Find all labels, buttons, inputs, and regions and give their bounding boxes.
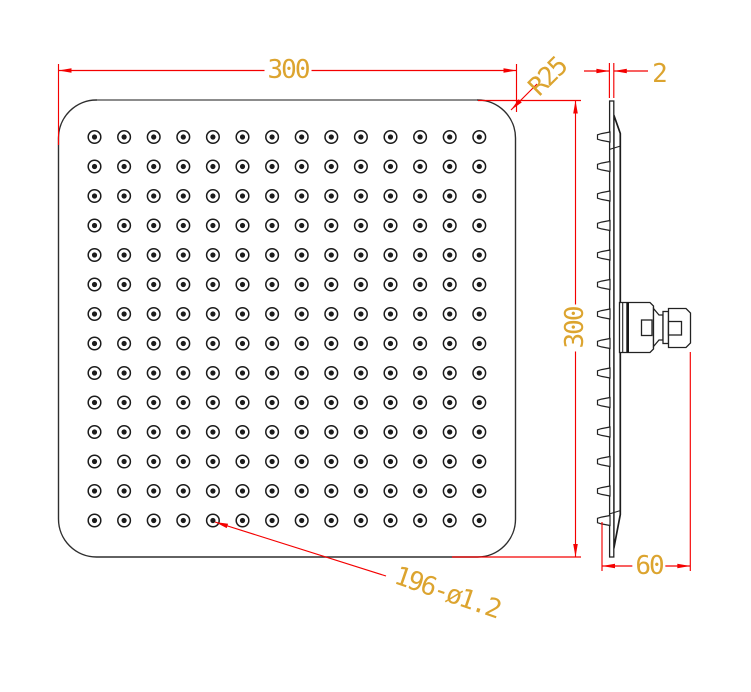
nozzle-hole <box>418 518 423 523</box>
nozzle-hole <box>270 518 275 523</box>
nozzle-hole <box>329 518 334 523</box>
nozzle-hole <box>181 223 186 228</box>
nozzle-hole <box>151 134 156 139</box>
nozzle-cone <box>598 191 611 201</box>
hose-socket <box>669 322 682 336</box>
nozzle-hole <box>329 164 334 169</box>
nozzle-hole <box>240 429 245 434</box>
nozzle-hole <box>477 488 482 493</box>
nozzle-cone <box>598 162 611 172</box>
nozzle-hole <box>388 193 393 198</box>
nozzle-hole <box>477 282 482 287</box>
nozzle-hole <box>92 429 97 434</box>
nozzle-hole <box>447 134 452 139</box>
nozzle-hole <box>418 370 423 375</box>
nozzle-hole <box>122 341 127 346</box>
nozzle-hole <box>358 459 363 464</box>
nozzle-hole <box>270 370 275 375</box>
nozzle-hole <box>151 223 156 228</box>
nozzle-hole <box>122 488 127 493</box>
nozzle-hole <box>418 134 423 139</box>
dim-thickness <box>584 63 648 98</box>
nozzle-hole <box>240 282 245 287</box>
nozzle-hole <box>270 193 275 198</box>
nozzle-hole <box>358 282 363 287</box>
nozzle-hole <box>358 429 363 434</box>
nozzle-hole <box>477 252 482 257</box>
nozzle-hole <box>151 341 156 346</box>
nozzle-hole <box>181 252 186 257</box>
nozzle-hole <box>181 193 186 198</box>
nozzle-hole <box>151 252 156 257</box>
nozzle-hole <box>210 252 215 257</box>
nozzle-hole <box>240 518 245 523</box>
nozzle-hole <box>240 164 245 169</box>
nozzle-hole <box>299 459 304 464</box>
nozzle-hole <box>447 252 452 257</box>
nozzle-hole <box>240 370 245 375</box>
nozzle-hole <box>358 252 363 257</box>
nozzle-hole <box>447 311 452 316</box>
nozzle-hole <box>151 429 156 434</box>
nozzle-hole <box>329 488 334 493</box>
nozzle-hole <box>122 370 127 375</box>
nozzle-hole <box>299 341 304 346</box>
nozzle-hole <box>210 341 215 346</box>
nozzle-hole <box>181 459 186 464</box>
nozzle-hole <box>447 223 452 228</box>
nozzle-hole <box>210 193 215 198</box>
nozzle-hole <box>418 164 423 169</box>
dim-width-label: 300 <box>265 57 312 83</box>
nozzle-hole <box>270 164 275 169</box>
nozzle-hole <box>447 429 452 434</box>
nozzle-hole <box>210 518 215 523</box>
nozzle-hole <box>299 282 304 287</box>
nozzle-hole <box>92 488 97 493</box>
nozzle-hole <box>418 429 423 434</box>
nozzle-hole <box>240 400 245 405</box>
nozzle-cone <box>598 309 611 319</box>
drawing-canvas: 300 R25 2 300 60 196-ø1.2 <box>0 0 751 692</box>
nozzle-hole <box>210 400 215 405</box>
nozzle-hole <box>299 370 304 375</box>
joint-collar <box>663 312 669 344</box>
nozzle-hole <box>151 282 156 287</box>
nozzle-hole <box>299 518 304 523</box>
nozzle-hole <box>358 341 363 346</box>
nozzle-hole <box>329 370 334 375</box>
nozzle-hole <box>151 370 156 375</box>
connector-assembly <box>620 303 691 353</box>
nozzle-hole <box>240 223 245 228</box>
nozzle-hole <box>210 459 215 464</box>
nozzle-hole <box>388 134 393 139</box>
nozzle-hole <box>358 518 363 523</box>
nozzle-hole <box>92 134 97 139</box>
nozzle-hole <box>122 223 127 228</box>
nozzle-hole <box>358 370 363 375</box>
nozzle-hole <box>122 134 127 139</box>
nozzle-hole <box>151 400 156 405</box>
nozzle-hole <box>329 223 334 228</box>
nozzle-hole <box>299 400 304 405</box>
nozzle-hole <box>477 223 482 228</box>
nozzle-hole <box>299 252 304 257</box>
nozzle-hole <box>210 488 215 493</box>
nozzle-cone <box>598 457 611 467</box>
nozzle-hole <box>151 311 156 316</box>
nozzle-hole <box>240 311 245 316</box>
nozzle-hole <box>210 282 215 287</box>
nozzle-hole <box>299 311 304 316</box>
side-view <box>598 101 691 557</box>
nozzle-hole <box>388 252 393 257</box>
nozzle-hole <box>240 341 245 346</box>
nozzle-hole <box>92 370 97 375</box>
nozzle-hole <box>270 400 275 405</box>
nozzle-hole <box>388 459 393 464</box>
nozzle-hole <box>447 400 452 405</box>
nozzle-hole <box>270 459 275 464</box>
nozzle-cone <box>598 427 611 437</box>
nozzle-hole <box>151 193 156 198</box>
nozzle-hole <box>210 164 215 169</box>
nozzle-hole <box>329 311 334 316</box>
nozzle-hole <box>388 223 393 228</box>
nozzle-hole <box>122 429 127 434</box>
nozzle-hole <box>388 429 393 434</box>
nozzle-hole <box>270 282 275 287</box>
ball-detail <box>642 320 653 336</box>
nozzle-hole <box>418 488 423 493</box>
nozzle-hole <box>329 134 334 139</box>
nozzle-hole <box>151 459 156 464</box>
dim-depth-label: 60 <box>632 553 665 579</box>
nozzle-hole <box>92 164 97 169</box>
nozzle-hole <box>329 252 334 257</box>
nozzle-hole <box>299 223 304 228</box>
nozzle-cone <box>598 398 611 408</box>
nozzle-hole <box>447 459 452 464</box>
nozzle-hole <box>122 193 127 198</box>
nozzle-hole <box>388 400 393 405</box>
nozzle-hole <box>329 400 334 405</box>
nozzle-hole <box>299 488 304 493</box>
nozzle-hole <box>210 134 215 139</box>
nozzle-hole <box>210 429 215 434</box>
nozzle-hole <box>329 459 334 464</box>
nozzle-hole <box>447 518 452 523</box>
joint-waist <box>654 309 664 347</box>
nozzle-hole <box>418 311 423 316</box>
drawing-svg <box>0 0 751 692</box>
nozzle-hole <box>447 164 452 169</box>
housing-band <box>626 303 629 353</box>
nozzle-hole <box>122 400 127 405</box>
nozzle-cone <box>598 132 611 142</box>
nozzle-hole <box>418 341 423 346</box>
nozzle-cone <box>598 221 611 231</box>
nozzle-hole <box>418 282 423 287</box>
nozzle-hole <box>181 400 186 405</box>
nozzle-hole <box>270 429 275 434</box>
nozzle-hole <box>151 488 156 493</box>
front-view <box>59 100 516 557</box>
nozzle-hole <box>92 311 97 316</box>
nozzle-hole <box>477 429 482 434</box>
nozzle-hole <box>92 223 97 228</box>
nozzle-cone <box>598 339 611 349</box>
nozzle-hole <box>477 311 482 316</box>
nozzle-hole <box>477 459 482 464</box>
nozzle-hole <box>447 488 452 493</box>
nozzle-hole <box>240 252 245 257</box>
nozzle-hole <box>418 252 423 257</box>
nozzle-cone <box>598 368 611 378</box>
nozzle-hole <box>92 282 97 287</box>
nozzle-hole <box>270 134 275 139</box>
nozzle-hole <box>299 134 304 139</box>
nozzle-hole <box>181 370 186 375</box>
nozzle-hole <box>299 193 304 198</box>
nozzle-hole <box>358 164 363 169</box>
nozzle-hole <box>329 429 334 434</box>
nozzle-hole <box>358 134 363 139</box>
nozzle-hole <box>388 341 393 346</box>
nozzle-hole <box>92 400 97 405</box>
nozzle-hole <box>122 518 127 523</box>
nozzle-hole <box>181 341 186 346</box>
nozzle-hole <box>240 193 245 198</box>
nozzle-hole <box>358 193 363 198</box>
nozzle-hole <box>299 164 304 169</box>
nozzle-hole <box>388 370 393 375</box>
nozzle-hole <box>388 282 393 287</box>
nozzle-hole <box>447 282 452 287</box>
nozzle-hole <box>92 252 97 257</box>
nozzle-hole <box>210 223 215 228</box>
nozzle-hole <box>388 164 393 169</box>
dim-thickness-label: 2 <box>652 61 666 87</box>
nozzle-hole <box>181 311 186 316</box>
nozzle-hole <box>210 311 215 316</box>
nozzle-hole <box>418 459 423 464</box>
nozzle-hole <box>92 518 97 523</box>
nozzle-hole <box>122 311 127 316</box>
nozzle-hole <box>418 223 423 228</box>
nozzle-hole <box>151 164 156 169</box>
nozzle-hole <box>92 459 97 464</box>
side-nozzle-cones <box>598 132 611 526</box>
nozzle-hole <box>358 488 363 493</box>
nozzle-hole <box>388 311 393 316</box>
nozzle-hole <box>92 193 97 198</box>
nozzle-hole <box>181 134 186 139</box>
nozzle-hole <box>181 429 186 434</box>
nozzle-hole <box>388 488 393 493</box>
nozzle-hole <box>477 400 482 405</box>
nozzle-hole <box>447 370 452 375</box>
nozzle-hole <box>477 341 482 346</box>
nozzle-hole <box>477 370 482 375</box>
nozzle-hole <box>122 282 127 287</box>
nozzle-hole <box>388 518 393 523</box>
nozzle-hole <box>477 193 482 198</box>
nozzle-hole <box>181 488 186 493</box>
nozzle-hole <box>270 223 275 228</box>
nozzle-hole <box>151 518 156 523</box>
nozzle-hole <box>477 164 482 169</box>
dim-height-label: 300 <box>562 305 588 352</box>
nozzle-hole <box>329 193 334 198</box>
nozzle-hole <box>122 459 127 464</box>
nozzle-hole <box>240 488 245 493</box>
nozzle-cone <box>598 250 611 260</box>
nozzle-hole <box>122 164 127 169</box>
nozzle-cone <box>598 486 611 496</box>
nozzle-hole <box>181 282 186 287</box>
nozzle-hole <box>358 223 363 228</box>
nozzle-cone <box>598 280 611 290</box>
nozzle-hole <box>270 311 275 316</box>
nozzle-hole <box>181 518 186 523</box>
nozzle-hole <box>447 341 452 346</box>
nozzle-hole <box>181 164 186 169</box>
nozzle-hole <box>92 341 97 346</box>
nozzle-cone <box>598 516 611 526</box>
nozzle-hole <box>270 252 275 257</box>
nozzle-hole <box>358 311 363 316</box>
nozzle-hole <box>477 518 482 523</box>
nozzle-hole <box>240 459 245 464</box>
nozzle-hole <box>270 488 275 493</box>
nozzle-hole <box>329 341 334 346</box>
nozzle-hole <box>240 134 245 139</box>
nozzle-hole <box>477 134 482 139</box>
nozzle-hole <box>447 193 452 198</box>
nozzle-hole <box>418 193 423 198</box>
nozzle-hole <box>329 282 334 287</box>
nozzle-hole <box>358 400 363 405</box>
nozzle-hole <box>299 429 304 434</box>
nozzle-hole <box>418 400 423 405</box>
nozzle-hole <box>122 252 127 257</box>
nozzle-hole <box>210 370 215 375</box>
nozzle-hole <box>270 341 275 346</box>
